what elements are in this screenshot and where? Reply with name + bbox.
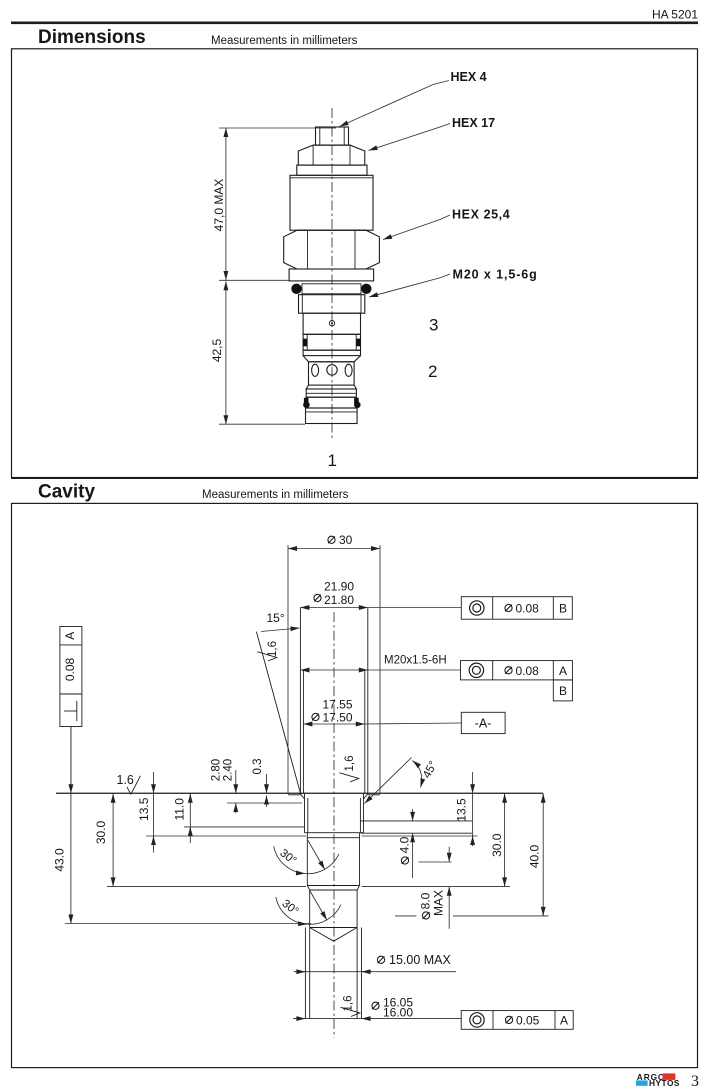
- svg-text:B: B: [559, 602, 567, 616]
- svg-text:4.0: 4.0: [398, 836, 412, 853]
- svg-text:MAX: MAX: [432, 890, 446, 916]
- svg-text:21.80: 21.80: [324, 593, 354, 607]
- svg-text:8.0: 8.0: [419, 892, 433, 909]
- svg-text:0.08: 0.08: [516, 664, 540, 678]
- svg-text:HEX 4: HEX 4: [451, 70, 487, 84]
- svg-text:1,6: 1,6: [267, 641, 279, 657]
- svg-text:0.3: 0.3: [252, 759, 264, 775]
- svg-text:1.6: 1.6: [117, 773, 134, 787]
- svg-text:40.0: 40.0: [528, 844, 542, 868]
- svg-text:2.80: 2.80: [211, 759, 223, 781]
- svg-text:13.5: 13.5: [137, 797, 151, 821]
- svg-text:B: B: [559, 684, 567, 698]
- svg-text:Dimensions: Dimensions: [38, 27, 146, 48]
- svg-text:0.08: 0.08: [516, 602, 540, 616]
- svg-text:-A-: -A-: [475, 717, 492, 731]
- svg-text:HEX 17: HEX 17: [452, 116, 495, 130]
- svg-text:3: 3: [429, 316, 438, 335]
- svg-text:3: 3: [691, 1073, 699, 1089]
- svg-text:15°: 15°: [267, 611, 285, 625]
- svg-text:47,0 MAX: 47,0 MAX: [212, 179, 226, 232]
- svg-text:30.0: 30.0: [490, 833, 504, 857]
- svg-text:15.00 MAX: 15.00 MAX: [389, 953, 452, 967]
- svg-text:1,6: 1,6: [343, 996, 355, 1012]
- svg-text:Measurements in millimeters: Measurements in millimeters: [211, 35, 358, 47]
- svg-text:17.50: 17.50: [323, 710, 353, 724]
- svg-text:16.00: 16.00: [383, 1005, 413, 1019]
- svg-text:11.0: 11.0: [173, 798, 187, 821]
- svg-text:HEX 25,4: HEX 25,4: [452, 208, 510, 222]
- svg-text:2: 2: [428, 362, 437, 381]
- svg-text:13.5: 13.5: [455, 798, 469, 822]
- svg-text:1,6: 1,6: [344, 756, 356, 772]
- svg-text:M20x1.5-6H: M20x1.5-6H: [384, 655, 447, 667]
- svg-text:A: A: [560, 1013, 568, 1027]
- svg-text:43.0: 43.0: [53, 848, 67, 872]
- svg-text:30.0: 30.0: [94, 820, 108, 844]
- svg-text:A: A: [63, 632, 77, 640]
- svg-text:30: 30: [339, 533, 353, 547]
- svg-text:A: A: [559, 664, 567, 678]
- svg-text:HYTOS: HYTOS: [649, 1078, 680, 1088]
- svg-text:M20 x 1,5-6g: M20 x 1,5-6g: [453, 268, 538, 282]
- svg-text:0.08: 0.08: [63, 657, 77, 681]
- svg-text:1: 1: [328, 451, 337, 470]
- svg-text:21.90: 21.90: [324, 580, 354, 594]
- svg-text:2.40: 2.40: [223, 759, 235, 781]
- svg-text:Cavity: Cavity: [38, 482, 95, 503]
- svg-text:Measurements in millimeters: Measurements in millimeters: [202, 489, 349, 501]
- svg-text:0.05: 0.05: [516, 1013, 540, 1027]
- svg-text:HA 5201: HA 5201: [652, 8, 698, 22]
- svg-text:42,5: 42,5: [210, 338, 224, 362]
